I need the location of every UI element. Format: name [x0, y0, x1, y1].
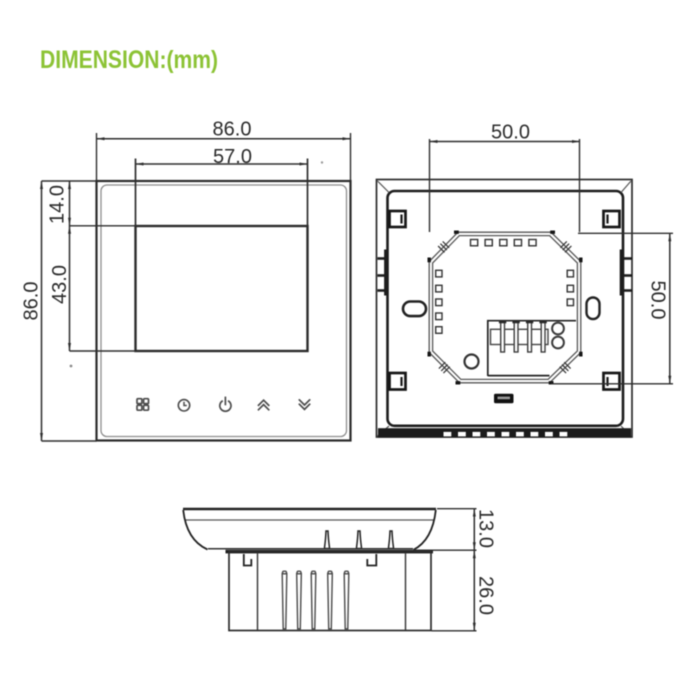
- svg-text:50.0: 50.0: [491, 122, 530, 144]
- svg-text:43.0: 43.0: [49, 265, 71, 304]
- svg-text:13.0: 13.0: [474, 509, 496, 548]
- svg-text:86.0: 86.0: [213, 119, 252, 141]
- svg-text:14.0: 14.0: [46, 185, 68, 224]
- svg-text:57.0: 57.0: [213, 146, 252, 168]
- svg-text:26.0: 26.0: [474, 576, 496, 615]
- svg-text:50.0: 50.0: [646, 281, 668, 320]
- svg-text:86.0: 86.0: [21, 282, 43, 321]
- svg-text:DIMENSION:(mm): DIMENSION:(mm): [40, 46, 218, 74]
